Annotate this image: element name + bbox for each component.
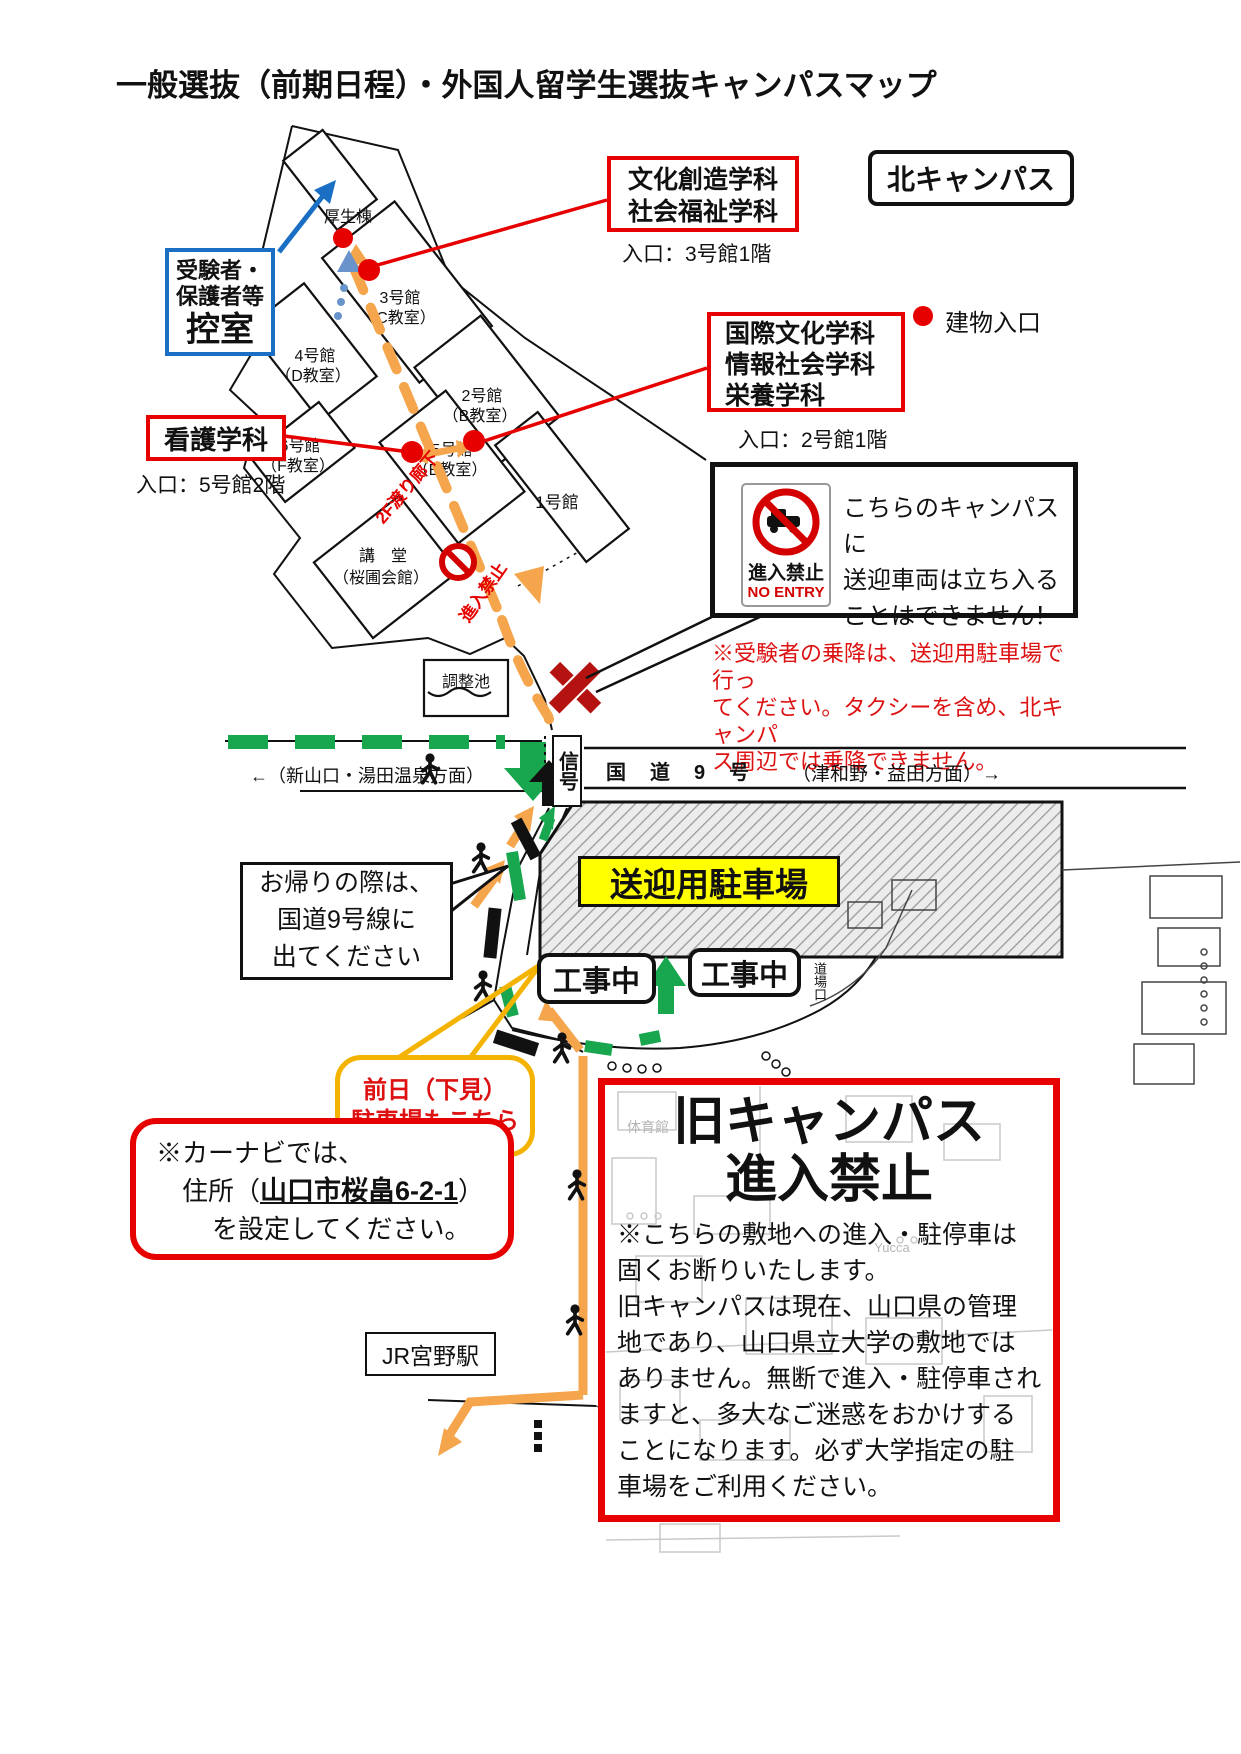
dept-kokusai-entrance: 入口：2号館1階: [738, 424, 887, 454]
parking-label: 送迎用駐車場: [578, 856, 840, 907]
previous-day-line1: 前日（下見）: [340, 1075, 530, 1106]
dept-bunka-entrance: 入口：3号館1階: [622, 238, 771, 268]
waiting-room-line1: 受験者・: [169, 258, 271, 284]
carnav-box: ※カーナビでは、 住所（山口市桜畠6-2-1） を設定してください。: [130, 1118, 514, 1260]
entrance-dot-3gokan: [358, 259, 380, 281]
legend-entrance-label: 建物入口: [945, 303, 1041, 338]
construction-box-2: 工事中: [688, 948, 801, 997]
no-entry-car-icon: [743, 485, 829, 559]
no-entry-info-box: 進入禁止 NO ENTRY こちらのキャンパスに 送迎車両は立ち入る ことはでき…: [710, 462, 1078, 618]
dept-kokusai-line2: 情報社会学科: [725, 350, 901, 381]
dept-kango-entrance: 入口：5号館2階: [136, 469, 285, 499]
dept-box-kango: 看護学科: [146, 415, 286, 461]
no-entry-text: こちらのキャンパスに 送迎車両は立ち入る ことはできません！: [843, 491, 1073, 635]
label-3gokan: 3号館: [380, 289, 421, 307]
path-no-entry-symbol: [442, 546, 474, 578]
no-entry-sign: 進入禁止 NO ENTRY: [741, 483, 831, 607]
label-2gokan: 2号館: [462, 387, 503, 405]
campus-tag: 北キャンパス: [868, 150, 1074, 206]
old-campus-title2: 進入禁止: [605, 1151, 1053, 1209]
no-entry-sign-en: NO ENTRY: [743, 584, 829, 602]
carnav-line2-post: ）: [458, 1176, 484, 1206]
dept-box-bunka: 文化創造学科 社会福祉学科: [607, 156, 799, 232]
no-entry-sign-jp: 進入禁止: [743, 564, 829, 584]
pedestrian-icon: [476, 970, 491, 999]
carnav-line2: 住所（山口市桜畠6-2-1）: [136, 1172, 508, 1210]
road-dots: [608, 1052, 790, 1076]
page-title: 一般選抜（前期日程）・外国人留学生選抜キャンパスマップ: [116, 60, 937, 105]
label-kodo-sub: （桜圃会館）: [333, 569, 429, 587]
label-pond: 調整池: [442, 673, 490, 691]
waiting-room-line2: 保護者等: [169, 284, 271, 310]
return-note-bubble: お帰りの際は、 国道9号線に 出てください: [240, 862, 453, 980]
entrance-dot-2gokan: [463, 430, 485, 452]
signal-box: 信号: [552, 735, 582, 807]
label-kosei: 厚生棟: [324, 208, 372, 226]
carnav-address: 山口市桜畠6-2-1: [260, 1176, 458, 1206]
label-2gokan-room: （B教室）: [443, 407, 518, 425]
station-box: JR宮野駅: [365, 1332, 496, 1376]
old-campus-box: 旧キャンパス 進入禁止 ※こちらの敷地への進入・駐停車は 固くお断りいたします。…: [598, 1078, 1060, 1522]
waiting-room-line3: 控室: [169, 310, 271, 350]
campus-map-page: 厚生棟 3号館 （C教室） 4号館 （D教室） 2号館 （B教室） 6号館 （F…: [0, 0, 1241, 1754]
label-1gokan: 1号館: [535, 493, 578, 512]
label-4gokan: 4号館: [295, 347, 336, 365]
pedestrian-icon: [474, 842, 489, 871]
dept-box-kokusai: 国際文化学科 情報社会学科 栄養学科: [707, 312, 905, 412]
road-dir-left: ←（新山口・湯田温泉方面）: [250, 762, 484, 788]
entrance-dot-kosei: [333, 228, 353, 248]
station-blocks: [534, 1420, 542, 1452]
dept-bunka-line1: 文化創造学科: [611, 164, 795, 196]
closed-crossing-x: [547, 660, 602, 714]
road-name: 国 道 9 号: [606, 756, 751, 785]
carnav-line3: を設定してください。: [136, 1210, 508, 1248]
old-campus-body: ※こちらの敷地への進入・駐停車は 固くお断りいたします。 旧キャンパスは現在、山…: [617, 1217, 1043, 1505]
construction-box-1: 工事中: [537, 953, 656, 1004]
waiting-room-box: 受験者・ 保護者等 控室: [165, 248, 275, 356]
label-4gokan-room: （D教室）: [275, 367, 351, 385]
old-campus-title1: 旧キャンパス: [605, 1093, 1053, 1151]
dept-kokusai-line1: 国際文化学科: [725, 319, 901, 350]
dept-bunka-line2: 社会福祉学科: [611, 196, 795, 228]
label-kodo: 講 堂: [359, 547, 407, 565]
carnav-line2-pre: 住所（: [182, 1176, 260, 1206]
carnav-line1: ※カーナビでは、: [136, 1134, 508, 1172]
legend-entrance-dot: [913, 306, 933, 326]
ride-note: ※受験者の乗降は、送迎用駐車場で行っ てください。タクシーを含め、北キャンパ ス…: [712, 640, 1082, 775]
dept-kokusai-line3: 栄養学科: [725, 381, 901, 412]
road-dir-right: （津和野・益田方面）→: [792, 759, 1001, 786]
dojo-gate-label: 道場口: [810, 962, 829, 1001]
